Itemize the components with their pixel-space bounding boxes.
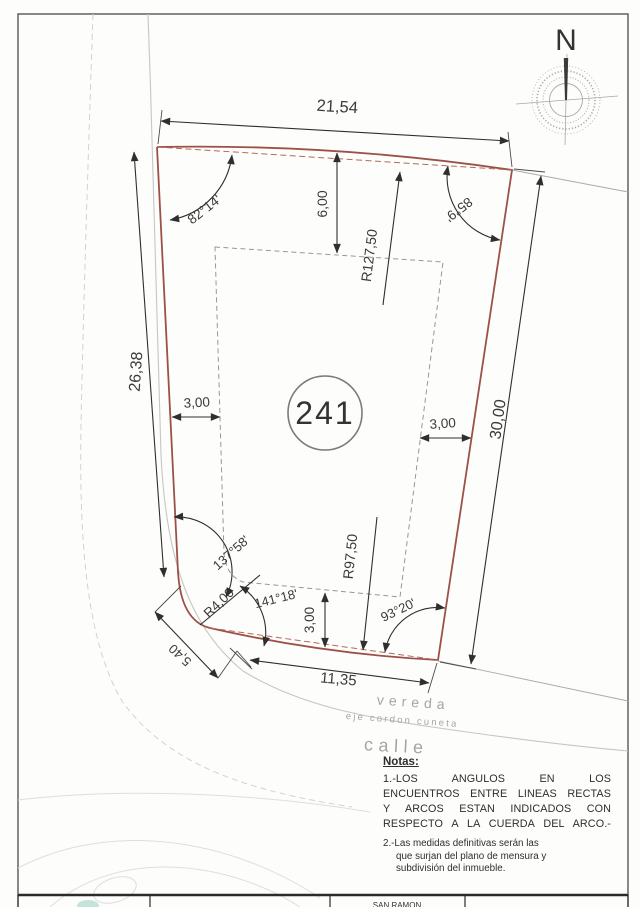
note1-line: 1.-LOS ANGULOS EN LOS: [383, 772, 611, 787]
title-block-stamp: [77, 900, 99, 907]
note2: 2.-Las medidas definitivas serán las que…: [383, 838, 611, 876]
north-label: N: [555, 24, 577, 57]
leader-top-radius: [383, 172, 400, 305]
ext-line: [230, 648, 252, 669]
ext-line: [428, 663, 437, 693]
dim-left-label: 26,38: [127, 351, 147, 392]
note1-line: ENCUENTROS ENTRE LINEAS RECTAS: [383, 787, 611, 802]
dim-right-setback-label: 3,00: [429, 415, 456, 432]
note1-line: Y ARCOS ESTAN INDICADOS CON: [383, 802, 611, 817]
ext-line: [237, 651, 251, 667]
bottom-radius-label: R97,50: [340, 533, 361, 580]
bottom-arc-chord-dashed: [210, 628, 438, 660]
angle-top-right-label: 85°9': [442, 194, 475, 225]
survey-plan-page: 241 21,54 26,38 30,00 11,35 5,40 6,00 3,…: [0, 0, 640, 907]
faint-curve-3: [18, 793, 370, 812]
note2-line: 2.-Las medidas definitivas serán las: [383, 838, 611, 851]
ext-line: [508, 132, 512, 167]
notes-title: Notas:: [383, 756, 611, 768]
angle-bottom-corner-label: 141°18': [253, 586, 299, 611]
top-radius-label: R127,50: [358, 228, 380, 283]
note1-line: RESPECTO A LA CUERDA DEL ARCO.-: [383, 817, 611, 832]
corner-radius-label: R4,00: [201, 585, 237, 621]
vereda-label: vereda: [376, 691, 450, 712]
notes-block: Notas: 1.-LOS ANGULOS EN LOS ENCUENTROS …: [383, 756, 611, 876]
dim-left-setback-label: 3,00: [183, 394, 210, 410]
dim-rear-setback-label: 3,00: [302, 607, 317, 633]
calle-label: calle: [364, 734, 429, 757]
angle-bottom-right-label: 93°20': [378, 595, 417, 625]
note2-line: que surjan del plano de mensura y: [383, 851, 611, 864]
dim-top-label: 21,54: [316, 97, 358, 117]
angle-left-corner-label: 137°58': [210, 532, 253, 572]
lot-number-bubble: 241: [288, 376, 362, 450]
top-edge-extension-line: [512, 170, 628, 192]
ext-line: [218, 651, 237, 678]
title-block: SAN RAMON: [18, 895, 628, 907]
faint-curve-1: [18, 841, 320, 898]
dim-right-label: 30,00: [487, 398, 509, 440]
note2-line: subdivisión del inmueble.: [383, 863, 611, 876]
leader-bottom-radius: [363, 517, 377, 650]
ext-line: [158, 110, 162, 144]
title-block-text: SAN RAMON: [373, 901, 422, 907]
compass-rose: N: [516, 24, 618, 145]
faint-blob: [90, 872, 139, 907]
street-labels: vereda eje cordon cuneta calle: [345, 691, 458, 757]
dim-corner-label: 5,40: [166, 641, 195, 669]
angle-top-left-label: 82°14': [185, 192, 224, 227]
dim-front-setback-label: 6,00: [314, 190, 330, 217]
compass-needle: [564, 58, 568, 100]
ext-line: [155, 586, 181, 612]
dim-line-top: [161, 121, 509, 141]
dim-bottom-label: 11,35: [320, 669, 358, 689]
lot-number-label: 241: [295, 395, 354, 431]
eje-cordon-cuneta-label: eje cordon cuneta: [345, 711, 458, 730]
